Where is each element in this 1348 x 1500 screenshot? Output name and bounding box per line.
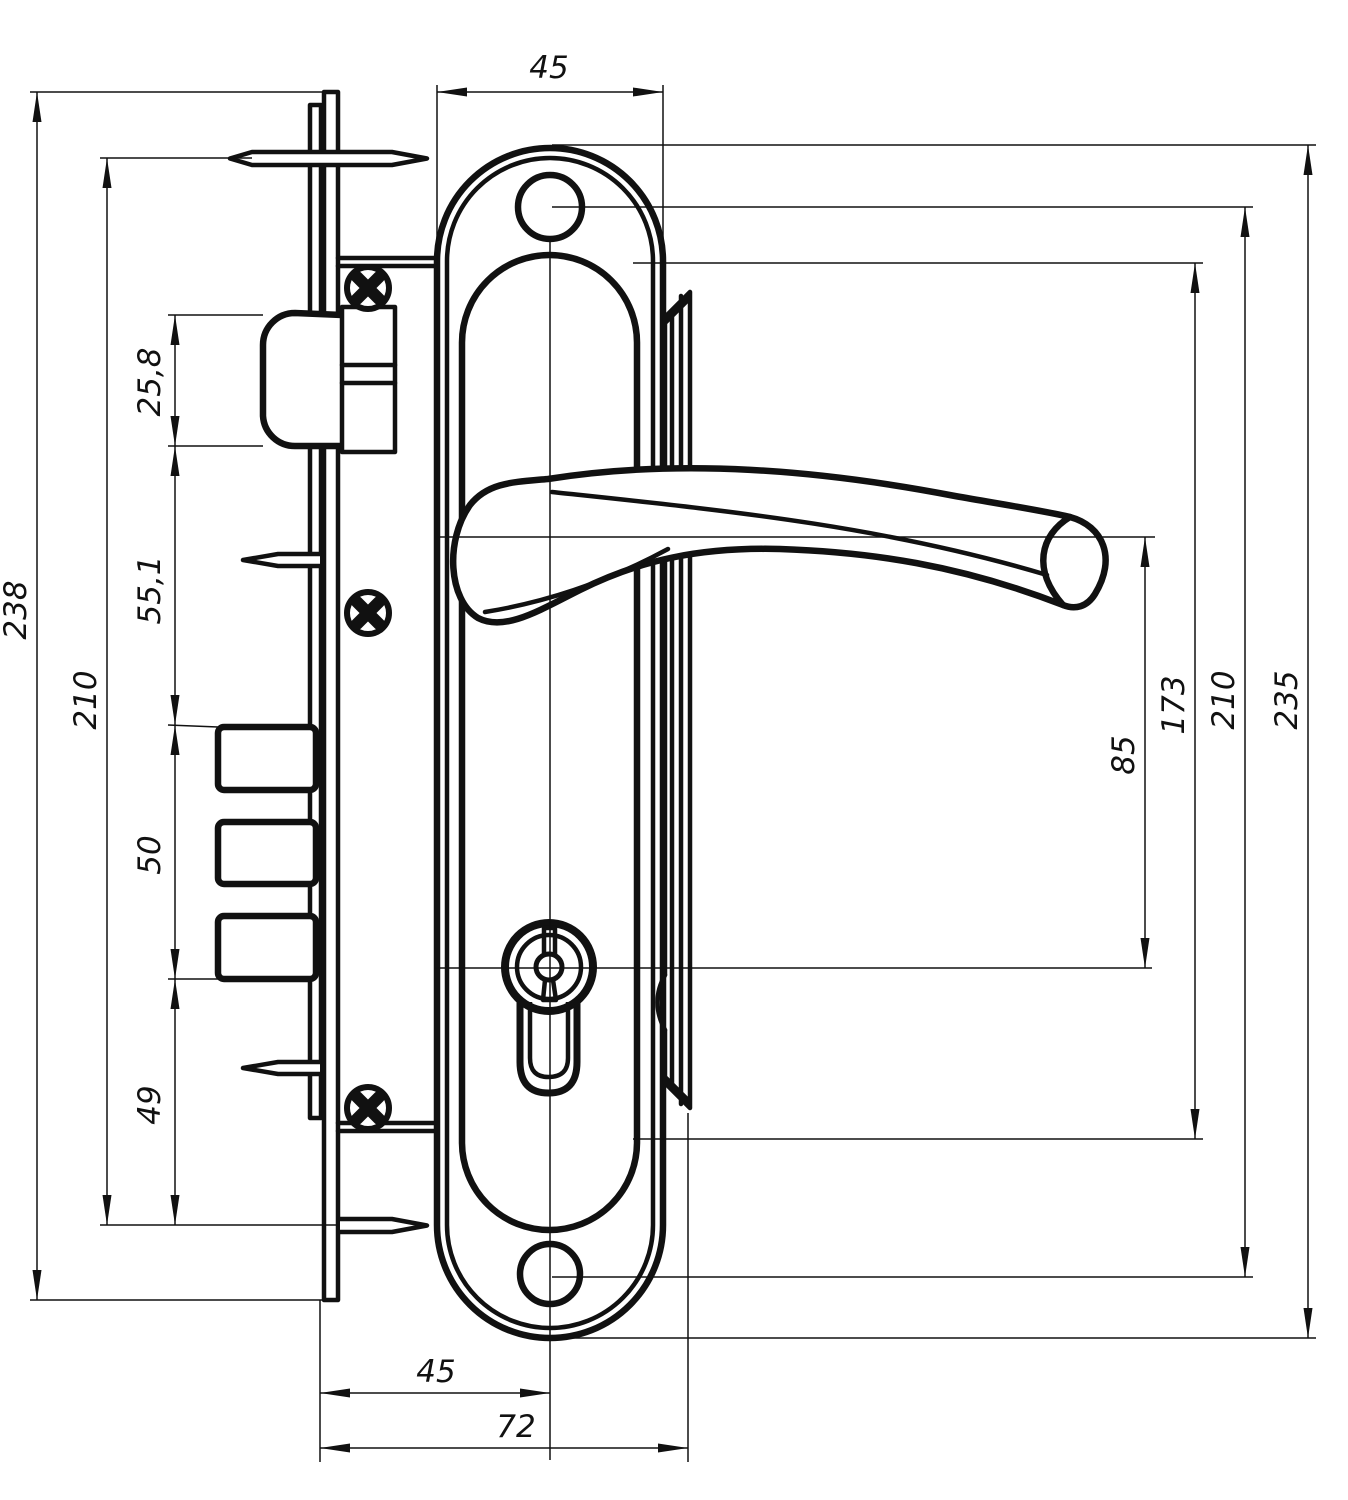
door-handle [453, 468, 1105, 622]
top-mounting-pin [230, 152, 427, 165]
deadbolt-1 [218, 727, 316, 790]
label-plate-height: 235 [1269, 670, 1305, 729]
case-screw-middle [347, 592, 389, 634]
latch-bolt [263, 313, 342, 446]
label-screw-spacing: 210 [1206, 670, 1242, 729]
label-pin-spacing: 210 [68, 670, 104, 729]
label-latch-to-bolts: 55,1 [132, 555, 168, 624]
label-total-height: 238 [0, 580, 34, 639]
label-panel-height: 173 [1156, 675, 1192, 734]
faceplate [324, 92, 338, 1300]
label-handle-to-cylinder: 85 [1106, 735, 1142, 774]
case-top-edge [338, 258, 440, 266]
label-bolts-to-pin: 49 [132, 1085, 168, 1124]
deadbolt-3 [218, 916, 316, 979]
lock-body [218, 92, 440, 1300]
lower-left-spike [243, 1062, 320, 1074]
case-screw-bottom [347, 1087, 389, 1129]
bottom-mounting-pin [340, 1219, 427, 1232]
label-total-depth: 72 [496, 1409, 535, 1445]
case-screw-top [347, 267, 389, 309]
lock-assembly-drawing: 45 238 210 25,8 55,1 50 49 85 173 210 23… [0, 0, 1348, 1500]
label-backset: 45 [416, 1354, 455, 1390]
side-profile-lines [665, 292, 690, 1108]
label-bolts-span: 50 [132, 835, 168, 874]
drawing-sheet: 45 238 210 25,8 55,1 50 49 85 173 210 23… [0, 0, 1348, 1500]
deadbolt-2 [218, 822, 316, 884]
upper-left-spike [243, 554, 320, 566]
label-latch-height: 25,8 [132, 347, 168, 416]
latch-inner-block [342, 307, 395, 452]
label-plate-width-top: 45 [529, 50, 568, 86]
